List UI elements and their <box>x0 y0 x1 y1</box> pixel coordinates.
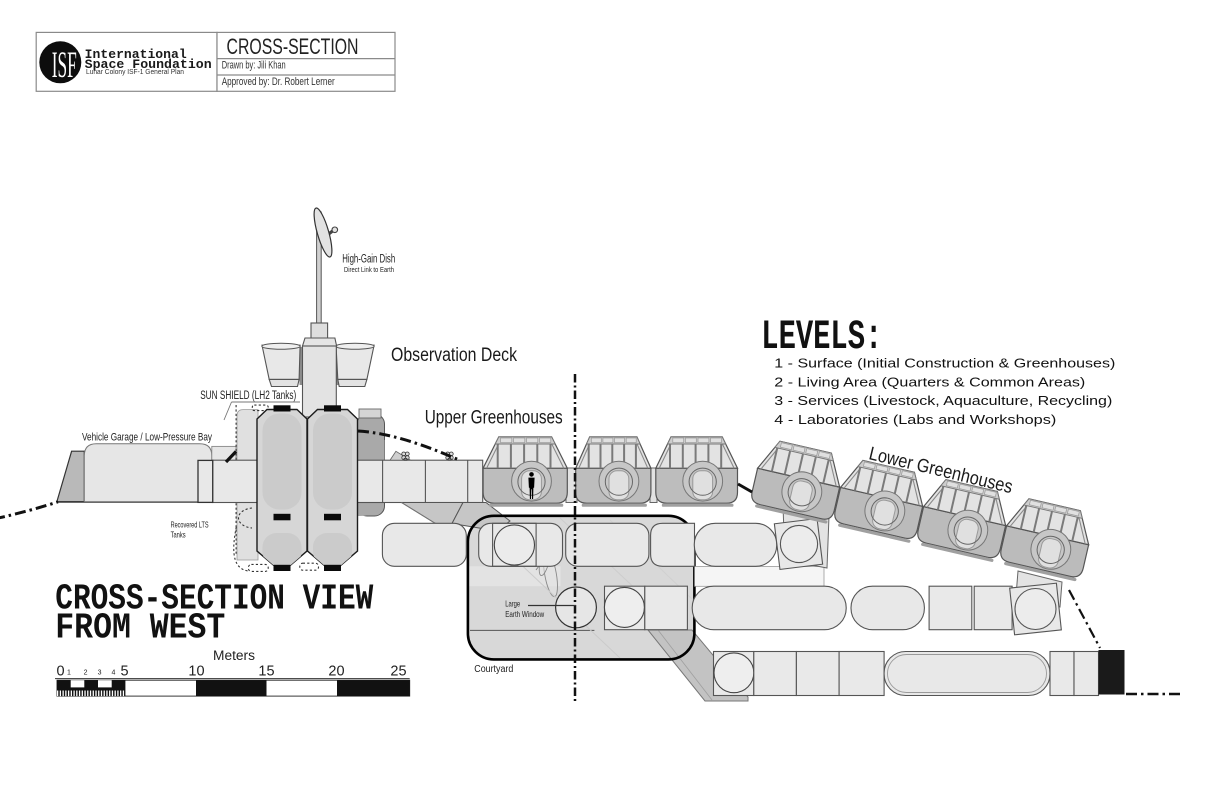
svg-text:Tanks: Tanks <box>171 530 186 539</box>
svg-text:1 - Surface (Initial Construct: 1 - Surface (Initial Construction & Gree… <box>774 356 1115 371</box>
svg-text:0: 0 <box>56 663 64 679</box>
svg-text:Upper Greenhouses: Upper Greenhouses <box>425 408 563 429</box>
svg-text:LEVELS:: LEVELS: <box>761 313 882 361</box>
svg-text:25: 25 <box>390 663 406 679</box>
svg-text:15: 15 <box>258 663 274 679</box>
svg-text:Observation Deck: Observation Deck <box>391 345 517 366</box>
svg-text:5: 5 <box>120 663 128 679</box>
svg-text:4: 4 <box>111 670 115 677</box>
svg-text:ISF: ISF <box>52 45 77 86</box>
svg-text:Lunar Colony ISF-1 General Pla: Lunar Colony ISF-1 General Plan <box>86 67 184 76</box>
svg-text:Earth Window: Earth Window <box>505 609 545 619</box>
svg-text:SUN SHIELD (LH2 Tanks): SUN SHIELD (LH2 Tanks) <box>200 390 296 402</box>
svg-text:4 - Laboratories (Labs and Wor: 4 - Laboratories (Labs and Workshops) <box>774 412 1056 427</box>
svg-text:Recovered LTS: Recovered LTS <box>171 521 209 530</box>
svg-text:Large: Large <box>505 599 520 609</box>
svg-text:High-Gain Dish: High-Gain Dish <box>342 254 395 266</box>
svg-text:20: 20 <box>328 663 344 679</box>
svg-text:FROM WEST: FROM WEST <box>55 608 225 649</box>
svg-text:Meters: Meters <box>213 648 255 663</box>
svg-text:10: 10 <box>188 663 204 679</box>
svg-text:CROSS-SECTION: CROSS-SECTION <box>227 34 359 59</box>
svg-text:1: 1 <box>67 670 71 677</box>
svg-text:2 - Living Area (Quarters & Co: 2 - Living Area (Quarters & Common Areas… <box>774 374 1085 389</box>
svg-text:2: 2 <box>84 670 88 677</box>
svg-text:Direct Link to Earth: Direct Link to Earth <box>344 265 394 274</box>
svg-text:Drawn by: Jili Khan: Drawn by: Jili Khan <box>222 59 286 71</box>
svg-text:Vehicle Garage / Low-Pressure: Vehicle Garage / Low-Pressure Bay <box>82 432 212 444</box>
svg-text:Courtyard: Courtyard <box>474 664 513 675</box>
svg-text:3 - Services (Livestock, Aquac: 3 - Services (Livestock, Aquaculture, Re… <box>774 393 1112 408</box>
svg-text:Approved by: Dr. Robert Lerner: Approved by: Dr. Robert Lerner <box>222 76 335 88</box>
svg-text:3: 3 <box>98 670 102 677</box>
